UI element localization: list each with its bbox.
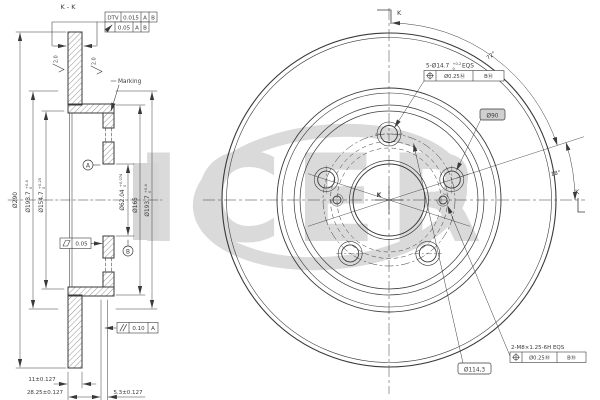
- marking-callout: Marking: [111, 79, 142, 111]
- section-k-top-label: K: [397, 9, 402, 17]
- dim-height-label: 28.25±0.127: [27, 390, 64, 396]
- dtv-datum-b: B: [151, 16, 155, 22]
- parallelism-value: 0.10: [132, 326, 145, 332]
- technical-drawing-page: ICER K - K: [0, 0, 600, 400]
- flatness-frame: 0.05: [60, 238, 102, 249]
- dim-flange: 5.3±0.127: [108, 390, 145, 397]
- surface-finish-left: 2.0: [53, 55, 64, 72]
- dim-hat-outer-left-label: Ø193.7: [25, 191, 32, 212]
- dim-bore-label: Ø62.04: [119, 189, 126, 210]
- dim-thickness-label: 11±0.127: [28, 377, 56, 383]
- section-view: K - K: [8, 3, 162, 400]
- center-k-label: K: [377, 192, 382, 199]
- bolt-holes-spec: 5-Ø14.7: [426, 63, 450, 70]
- section-k-right-label: K: [575, 188, 580, 196]
- dtv-frame: DTV 0.015 A B: [105, 12, 157, 22]
- angle-72-label: 72°: [486, 51, 498, 62]
- runout-value: 0.05: [118, 26, 131, 32]
- dim-thickness: 11±0.127: [28, 377, 96, 384]
- bolt-spacing-angle: 72°: [392, 23, 557, 145]
- dim-hat-outer-left-tol-up: +0.4: [25, 180, 29, 189]
- runout-datum-b: B: [143, 26, 147, 32]
- bolt-offset-angle: 18°: [550, 143, 575, 201]
- parallelism-frame: 0.10 A: [105, 323, 158, 334]
- datum-b-label: B: [126, 249, 130, 255]
- brake-disc-drawing: ICER K - K: [0, 0, 600, 400]
- dim-flange-label: 5.3±0.127: [113, 390, 143, 396]
- bolt-holes-position-datum: BⓂ: [484, 72, 493, 80]
- dim-height: 28.25±0.127: [27, 390, 100, 397]
- thread-holes-spec: 2-M8×1.25-6H EQS: [511, 345, 565, 351]
- dtv-label: DTV: [107, 16, 119, 22]
- angle-18-label: 18°: [550, 170, 561, 178]
- runout-datum-a: A: [135, 26, 139, 32]
- thread-holes-position-datum: BⓂ: [567, 354, 576, 362]
- dim-hat-inner-tol-up: +0.25: [38, 178, 42, 189]
- dim-bore-tol-up: +0.074: [119, 173, 123, 187]
- thread-pcd-label: Ø90: [487, 112, 499, 119]
- dim-bore-tol-dn: 0: [123, 184, 127, 187]
- marking-label: Marking: [118, 79, 142, 85]
- dim-hat-outer-left-tol-dn: 0: [29, 186, 33, 189]
- surface-finish-left-value: 2.0: [54, 55, 60, 63]
- bolt-holes-tol-up: +0.2: [453, 62, 462, 66]
- section-title: K - K: [60, 3, 76, 11]
- datum-b: B: [123, 240, 133, 256]
- dim-hat-inner-tol-dn: 0: [42, 186, 46, 189]
- bolt-holes-position-tol: Ø0.25Ⓜ: [444, 72, 465, 80]
- datum-a: A: [83, 160, 100, 170]
- dim-hat-inner-label: Ø154.7: [38, 191, 45, 212]
- section-arrow-top: K: [377, 9, 402, 24]
- datum-a-label: A: [86, 163, 90, 169]
- surface-finish-right: 2.0: [91, 57, 102, 74]
- dim-outer-diameter-label: Ø290: [12, 192, 19, 208]
- dim-hat-outer-right-label: Ø193.7: [144, 195, 151, 216]
- dim-hat-outer-right-tol-up: +0.4: [144, 184, 148, 193]
- thread-holes-position-tol: Ø0.25Ⓜ: [529, 354, 550, 362]
- pcd-label: Ø114,3: [464, 366, 485, 373]
- surface-finish-right-value: 2.0: [92, 57, 98, 65]
- bolt-holes-eqs: EQS: [462, 64, 474, 70]
- dtv-value: 0.015: [123, 16, 139, 22]
- dim-pilot-label: Ø165: [132, 197, 139, 213]
- runout-frame: 0.05 A B: [105, 22, 149, 32]
- flatness-value: 0.05: [75, 242, 88, 248]
- dtv-datum-a: A: [143, 16, 147, 22]
- parallelism-datum: A: [151, 326, 155, 332]
- surface-finish-icon: [53, 64, 64, 72]
- surface-finish-icon: [91, 66, 102, 74]
